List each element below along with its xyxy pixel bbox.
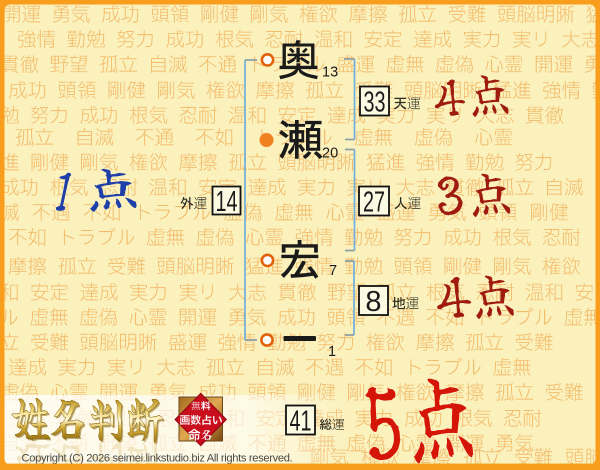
svg-text:33: 33	[364, 86, 386, 118]
svg-text:27: 27	[363, 186, 385, 218]
svg-text:1: 1	[328, 344, 336, 360]
svg-text:13: 13	[322, 65, 338, 81]
svg-text:14: 14	[216, 186, 238, 218]
svg-text:20: 20	[322, 146, 338, 162]
svg-text:8: 8	[365, 286, 381, 318]
svg-text:Copyright (C) 2026 seimei.link: Copyright (C) 2026 seimei.linkstudio.biz…	[22, 453, 293, 465]
svg-text:7: 7	[329, 263, 337, 279]
svg-text:41: 41	[290, 405, 312, 437]
